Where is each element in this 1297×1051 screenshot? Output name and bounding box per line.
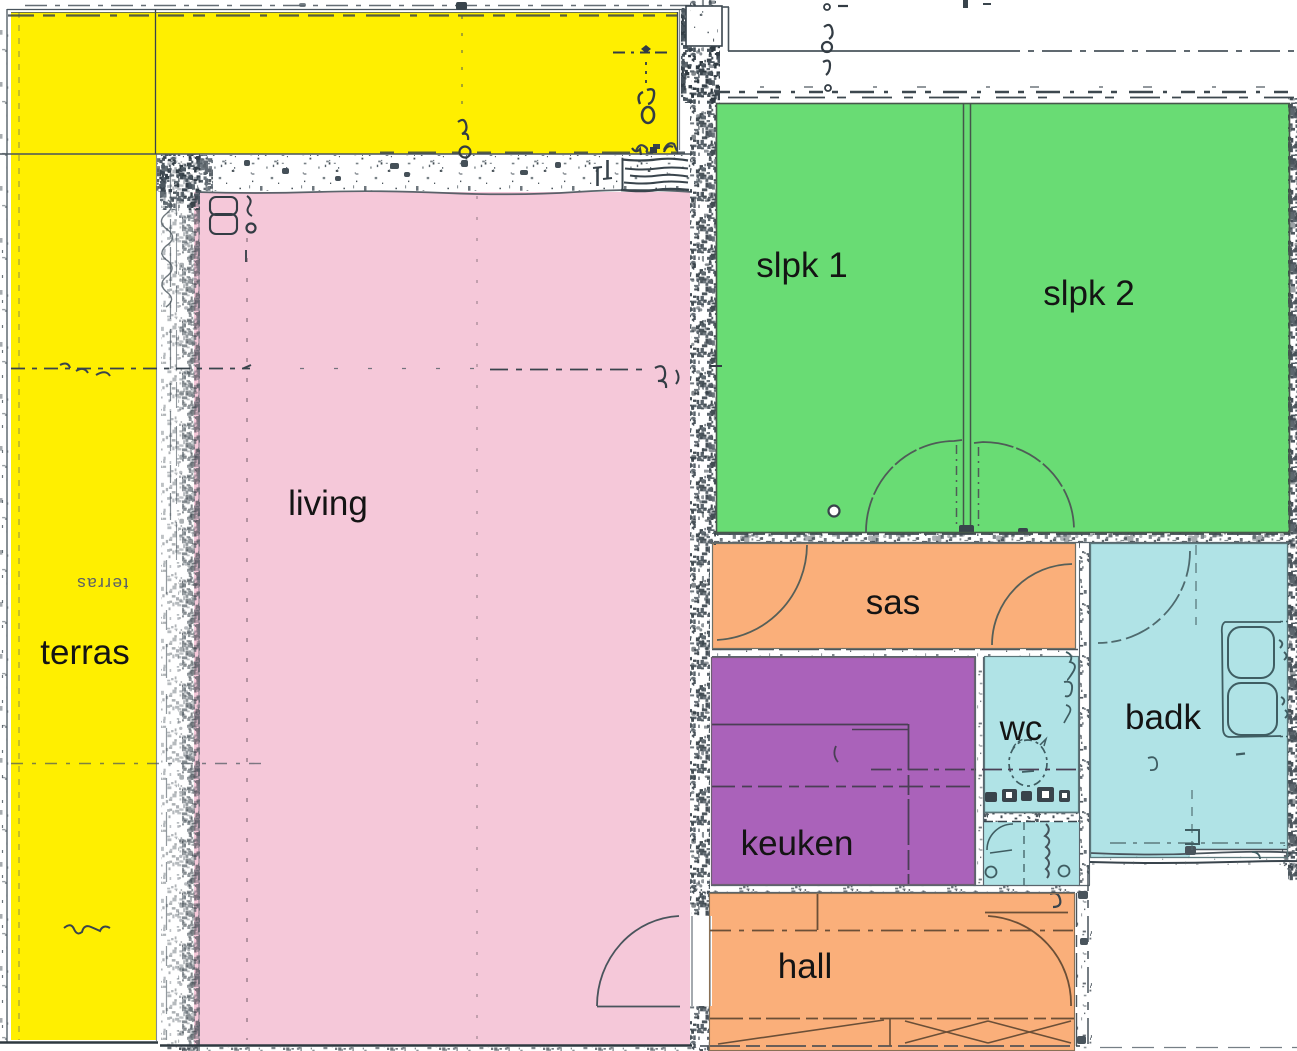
- svg-text:living: living: [288, 484, 368, 523]
- svg-text:keuken: keuken: [741, 824, 854, 863]
- svg-text:terras: terras: [76, 574, 128, 593]
- svg-text:hall: hall: [778, 947, 832, 986]
- svg-text:badk: badk: [1125, 698, 1201, 737]
- svg-text:slpk 2: slpk 2: [1043, 274, 1134, 313]
- svg-text:terras: terras: [40, 633, 129, 672]
- svg-text:wc: wc: [999, 709, 1043, 748]
- svg-text:sas: sas: [866, 583, 920, 622]
- svg-text:slpk 1: slpk 1: [756, 246, 847, 285]
